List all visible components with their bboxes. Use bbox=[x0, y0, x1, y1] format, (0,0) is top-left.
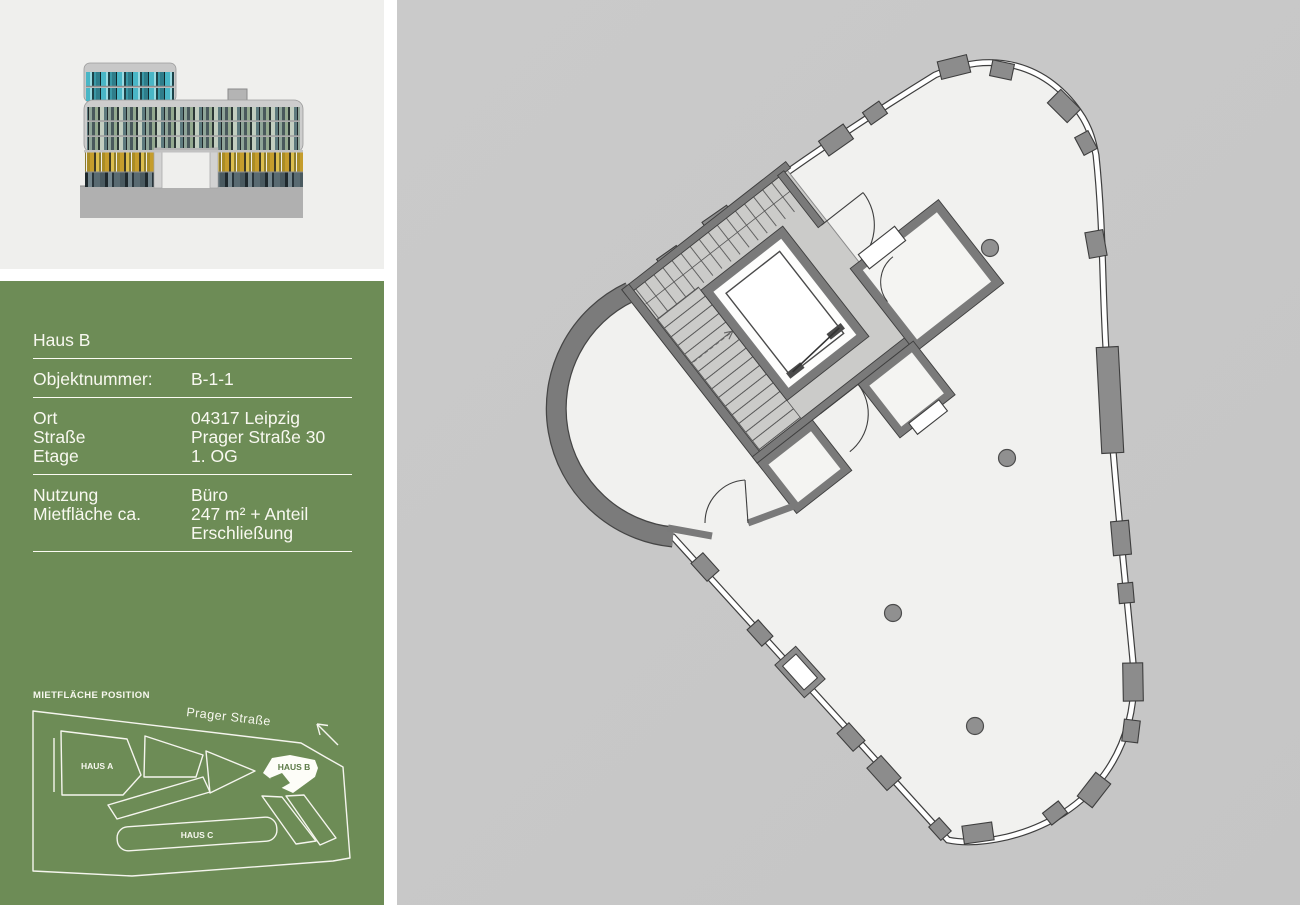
building-tower bbox=[84, 63, 176, 102]
info-label: Ort bbox=[33, 409, 191, 428]
info-value: Erschließung bbox=[191, 524, 352, 543]
expose-page: Haus B Objektnummer: B-1-1 Ort 04317 Lei… bbox=[0, 0, 1300, 905]
info-value: Prager Straße 30 bbox=[191, 428, 352, 447]
info-value: 1. OG bbox=[191, 447, 352, 466]
structural-column-dot bbox=[999, 450, 1016, 467]
property-title: Haus B bbox=[33, 331, 352, 350]
building-haus-b-marker: HAUS B bbox=[263, 755, 318, 793]
info-label: Mietfläche ca. bbox=[33, 505, 191, 524]
info-row-erschliessung: Erschließung bbox=[33, 524, 352, 543]
info-value: 04317 Leipzig bbox=[191, 409, 352, 428]
site-strip bbox=[262, 796, 316, 844]
info-row-nutzung: Nutzung Büro bbox=[33, 486, 352, 505]
site-strip bbox=[206, 751, 255, 793]
property-info-panel: Haus B Objektnummer: B-1-1 Ort 04317 Lei… bbox=[0, 281, 384, 905]
site-strip bbox=[108, 777, 210, 819]
street-label: Prager Straße bbox=[186, 705, 272, 729]
building-archway bbox=[154, 148, 218, 188]
building-main-slab bbox=[84, 100, 303, 153]
info-label: Nutzung bbox=[33, 486, 191, 505]
info-row-mietflaeche: Mietfläche ca. 247 m² + Anteil bbox=[33, 505, 352, 524]
info-value: 247 m² + Anteil bbox=[191, 505, 352, 524]
building-label-haus-c: HAUS C bbox=[181, 830, 214, 840]
site-map-title: MIETFLÄCHE POSITION bbox=[33, 690, 150, 701]
building-elevation-image bbox=[0, 0, 384, 269]
building-base bbox=[80, 186, 303, 218]
separator-line bbox=[33, 397, 352, 398]
floor-plan-panel bbox=[397, 0, 1300, 905]
structural-column-dot bbox=[967, 718, 984, 735]
info-label bbox=[33, 524, 191, 543]
facade-band bbox=[84, 150, 303, 153]
floor-plan-drawing bbox=[397, 0, 1300, 905]
info-row-etage: Etage 1. OG bbox=[33, 447, 352, 466]
info-label: Etage bbox=[33, 447, 191, 466]
info-value: Büro bbox=[191, 486, 352, 505]
info-row-strasse: Straße Prager Straße 30 bbox=[33, 428, 352, 447]
separator-line bbox=[33, 474, 352, 475]
info-row-objektnummer: Objektnummer: B-1-1 bbox=[33, 370, 352, 389]
north-arrow-icon bbox=[317, 724, 338, 745]
info-row-ort: Ort 04317 Leipzig bbox=[33, 409, 352, 428]
structural-column-dot bbox=[982, 240, 999, 257]
site-strip bbox=[144, 736, 203, 777]
separator-line bbox=[33, 551, 352, 552]
info-label: Straße bbox=[33, 428, 191, 447]
info-label: Objektnummer: bbox=[33, 370, 191, 389]
separator-line bbox=[33, 358, 352, 359]
building-label-haus-b: HAUS B bbox=[278, 762, 311, 772]
property-info-text: Haus B Objektnummer: B-1-1 Ort 04317 Lei… bbox=[33, 331, 352, 563]
structural-column-dot bbox=[885, 605, 902, 622]
site-location-map: MIETFLÄCHE POSITION HAUS B HAUS A HAUS C bbox=[0, 680, 384, 905]
rooftop-cylinder bbox=[228, 89, 247, 101]
info-value: B-1-1 bbox=[191, 370, 352, 389]
site-boundary bbox=[33, 711, 350, 876]
building-label-haus-a: HAUS A bbox=[81, 761, 113, 771]
site-strip bbox=[286, 795, 336, 845]
building-elevation-panel bbox=[0, 0, 384, 269]
